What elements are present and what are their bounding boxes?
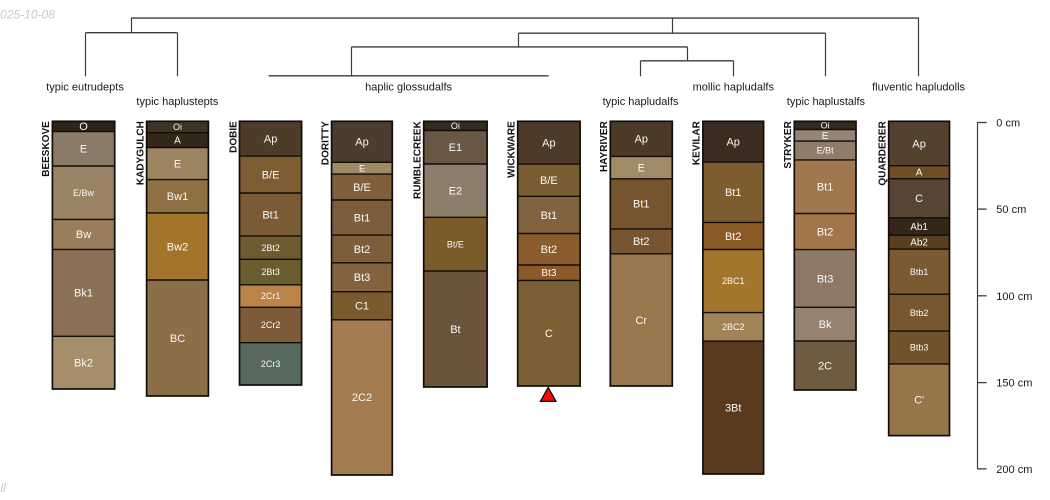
svg-text:KADYGULCH: KADYGULCH: [135, 121, 146, 185]
svg-text:2Bt3: 2Bt3: [261, 267, 280, 277]
svg-text:2BC1: 2BC1: [722, 276, 745, 286]
svg-text:A: A: [916, 168, 923, 179]
svg-text:3Bt: 3Bt: [725, 402, 742, 414]
svg-text:typic haplustepts: typic haplustepts: [136, 96, 218, 108]
svg-text:Btb3: Btb3: [910, 343, 929, 353]
svg-text:Bt1: Bt1: [354, 212, 371, 224]
svg-text:STRYKER: STRYKER: [783, 120, 794, 168]
svg-text:C': C': [914, 395, 924, 407]
svg-text:DORITTY: DORITTY: [320, 121, 331, 165]
svg-text:E: E: [638, 163, 645, 175]
svg-text:typic hapludalfs: typic hapludalfs: [603, 96, 679, 108]
svg-text:E: E: [822, 131, 829, 142]
svg-text:RUMBLECREEK: RUMBLECREEK: [413, 120, 424, 199]
svg-text:B/E: B/E: [353, 182, 371, 194]
svg-text:Bt3: Bt3: [541, 268, 556, 279]
svg-text:2025-10-08: 2025-10-08: [0, 8, 55, 22]
svg-text:2BC2: 2BC2: [722, 322, 745, 332]
svg-text:Btb2: Btb2: [910, 308, 929, 318]
svg-text:E: E: [359, 163, 365, 173]
svg-text:E/Bw: E/Bw: [73, 188, 95, 198]
svg-text:2Cr1: 2Cr1: [261, 291, 281, 301]
svg-text:Ap: Ap: [726, 137, 739, 149]
svg-text:Bt2: Bt2: [725, 231, 742, 243]
svg-text:DOBIE: DOBIE: [228, 121, 239, 153]
svg-text:Bt1: Bt1: [262, 209, 279, 221]
svg-text:2C2: 2C2: [352, 392, 372, 404]
svg-text:typic haplustalfs: typic haplustalfs: [787, 96, 866, 108]
svg-text:C1: C1: [355, 301, 369, 313]
svg-text:Bt/E: Bt/E: [447, 239, 464, 249]
svg-text:Bt1: Bt1: [725, 187, 742, 199]
svg-text:Cr: Cr: [635, 315, 647, 327]
svg-text:Bk: Bk: [819, 319, 832, 331]
svg-text:BC: BC: [170, 333, 185, 345]
svg-text:Bw1: Bw1: [167, 191, 188, 203]
svg-text:2Cr3: 2Cr3: [261, 359, 281, 369]
svg-text:Ab2: Ab2: [910, 238, 928, 249]
svg-text:Ab1: Ab1: [910, 222, 928, 233]
svg-text:Bt2: Bt2: [633, 236, 650, 248]
svg-text:Oi: Oi: [173, 122, 182, 132]
svg-text:E2: E2: [449, 186, 462, 198]
svg-text:BEESKOVE: BEESKOVE: [41, 121, 52, 177]
svg-text:E/Bt: E/Bt: [817, 146, 835, 156]
svg-text:C: C: [545, 328, 553, 340]
svg-text:E: E: [174, 158, 181, 170]
svg-text:Bw2: Bw2: [167, 241, 188, 253]
svg-text:A: A: [174, 136, 181, 147]
svg-text:haplic glossudalfs: haplic glossudalfs: [365, 82, 452, 94]
svg-text:2Cr2: 2Cr2: [261, 320, 281, 330]
svg-text:2Bt2: 2Bt2: [261, 243, 280, 253]
svg-text:Ap: Ap: [912, 138, 925, 150]
svg-text:B/E: B/E: [540, 175, 558, 187]
svg-text:E: E: [80, 144, 87, 156]
svg-text:Ap: Ap: [264, 134, 277, 146]
svg-text:Btb1: Btb1: [910, 267, 929, 277]
svg-text:Bt1: Bt1: [817, 182, 834, 194]
svg-text:B/E: B/E: [262, 169, 280, 181]
svg-text:Bt: Bt: [450, 324, 460, 336]
svg-text:C: C: [915, 193, 923, 205]
svg-text:Bt2: Bt2: [541, 244, 558, 256]
svg-text:mollic hapludalfs: mollic hapludalfs: [693, 82, 775, 94]
svg-text:KEVILAR: KEVILAR: [692, 120, 703, 165]
svg-text:all: all: [0, 481, 6, 495]
svg-text:50 cm: 50 cm: [996, 204, 1026, 216]
svg-text:2C: 2C: [818, 360, 832, 372]
svg-text:Bw: Bw: [76, 229, 91, 241]
svg-text:Bt1: Bt1: [633, 199, 650, 211]
svg-text:100 cm: 100 cm: [996, 291, 1032, 303]
svg-text:Bt1: Bt1: [541, 210, 558, 222]
svg-text:Bt2: Bt2: [817, 226, 834, 238]
svg-text:Oi: Oi: [451, 121, 460, 131]
svg-text:0 cm: 0 cm: [996, 118, 1020, 130]
svg-text:Bk1: Bk1: [74, 288, 93, 300]
svg-text:Ap: Ap: [635, 134, 648, 146]
svg-text:Bt3: Bt3: [354, 272, 371, 284]
svg-text:QUARDERER: QUARDERER: [878, 120, 889, 185]
svg-text:200 cm: 200 cm: [996, 464, 1032, 476]
svg-text:fluventic hapludolls: fluventic hapludolls: [872, 82, 965, 94]
svg-text:Ap: Ap: [355, 137, 368, 149]
svg-text:150 cm: 150 cm: [996, 378, 1032, 390]
svg-text:E1: E1: [449, 142, 462, 154]
svg-text:typic eutrudepts: typic eutrudepts: [46, 82, 124, 94]
svg-text:Ap: Ap: [542, 138, 555, 150]
svg-text:WICKWARE: WICKWARE: [507, 121, 518, 178]
svg-text:HAYRIVER: HAYRIVER: [599, 120, 610, 172]
svg-text:Bk2: Bk2: [74, 358, 93, 370]
svg-text:Bt2: Bt2: [354, 244, 371, 256]
svg-text:Bt3: Bt3: [817, 273, 834, 285]
